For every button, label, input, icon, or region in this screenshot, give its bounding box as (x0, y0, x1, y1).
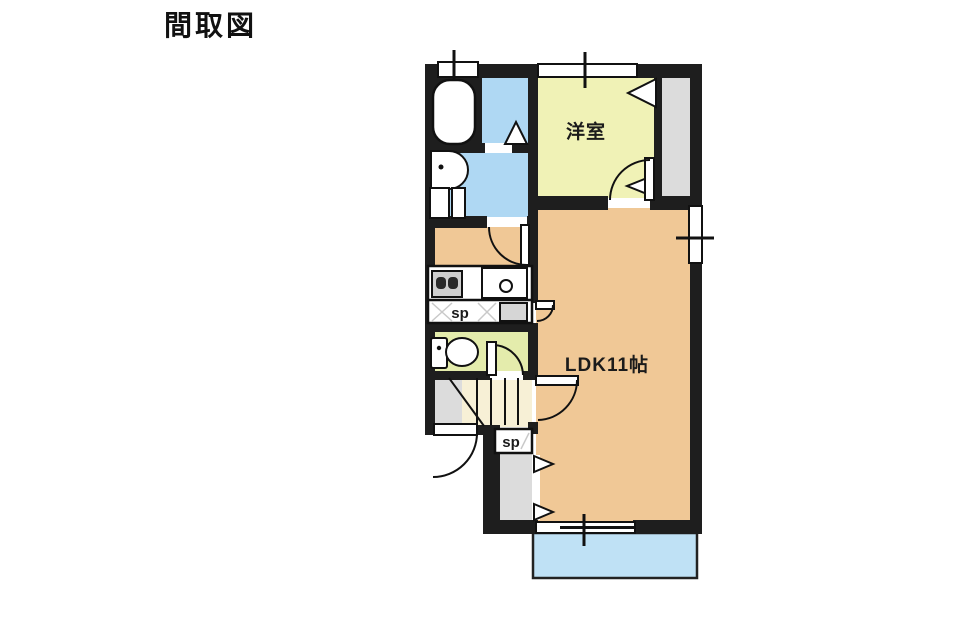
western-room-closet-floor (662, 76, 690, 200)
bathtub (433, 80, 475, 144)
stair-landing-floor (431, 376, 462, 427)
window-western-room (538, 64, 637, 77)
bathroom-floor (478, 74, 532, 145)
wall-ldk-bottom-r (633, 520, 702, 534)
western-room-doorway (608, 198, 650, 208)
western-room-label: 洋室 (566, 120, 606, 143)
toilet-bowl (446, 338, 478, 366)
toilet-tank (431, 338, 447, 368)
stove-burner-2-icon (448, 277, 458, 289)
stairs-floor (462, 376, 532, 427)
western-room-door-leaf (645, 158, 654, 200)
window-bathroom (438, 62, 478, 77)
lower-closet-floor (500, 453, 532, 521)
entrance-door-arc (433, 433, 477, 477)
floor-plan: 洋室 LDK11帖 sp sp (0, 0, 960, 640)
storage-box-upper (500, 303, 527, 321)
toilet-button-icon (437, 346, 441, 350)
balcony (533, 533, 697, 578)
stove-burner-1-icon (436, 277, 446, 289)
ldk-door-leaf (536, 376, 578, 385)
washer-space-1 (430, 188, 449, 218)
wall-right (690, 64, 702, 522)
wall-western-bottom-l (528, 196, 608, 210)
wall-toilet-top (425, 323, 538, 332)
toilet-door-leaf (487, 342, 496, 375)
kitchen-door-leaf (536, 301, 554, 309)
sink-faucet-icon (500, 280, 512, 292)
window-ldk-right (689, 206, 702, 263)
wall-entrance-l (425, 425, 434, 435)
washer-space-2 (452, 188, 465, 218)
storage-sp-lower-label: sp (502, 434, 520, 451)
floor-plan-canvas: 間取図 (0, 0, 960, 640)
wall-bottom-under-closet (483, 520, 538, 534)
storage-sp-upper-label: sp (451, 305, 469, 322)
washroom-door-leaf (521, 225, 529, 265)
washbasin (431, 151, 468, 189)
wall-toilet-bottom-l (425, 371, 490, 380)
page-title: 間取図 (164, 4, 257, 44)
kitchen-corridor-floor (431, 226, 532, 268)
washbasin-faucet-icon (439, 165, 444, 170)
ldk-label: LDK11帖 (565, 353, 649, 376)
entrance-door-leaf (434, 424, 477, 435)
wall-central-mid (528, 324, 538, 378)
